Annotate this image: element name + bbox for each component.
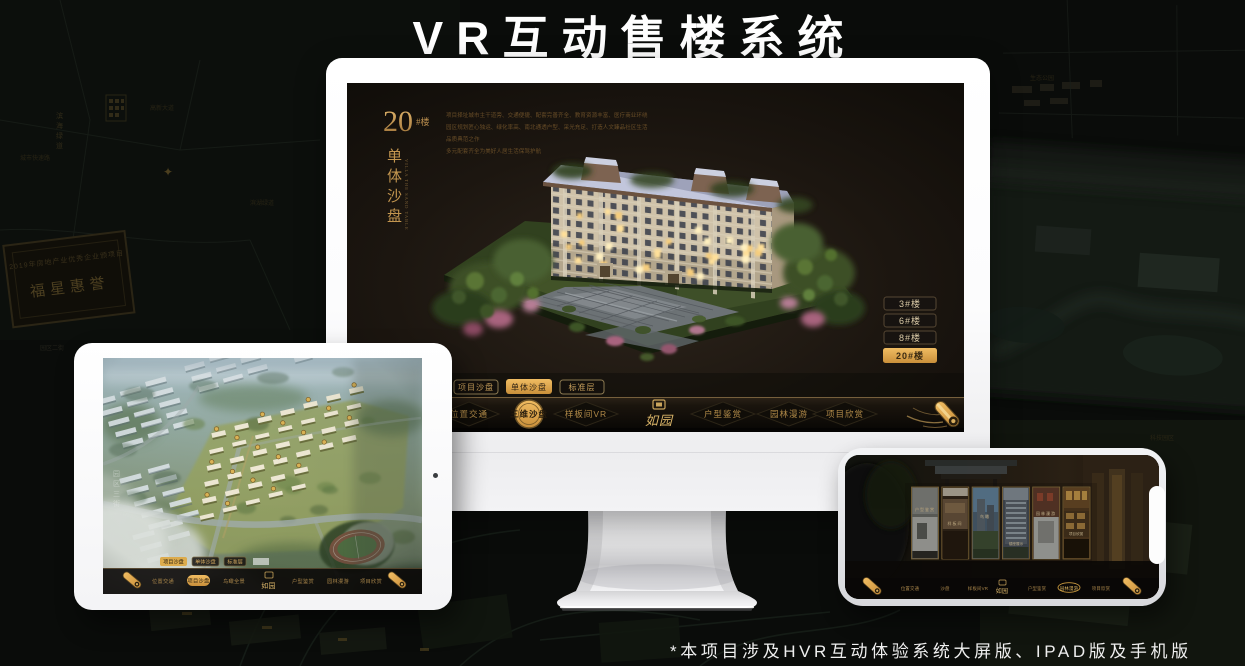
svg-text:单体沙盘: 单体沙盘 bbox=[195, 558, 216, 566]
svg-text:生态公园: 生态公园 bbox=[1030, 74, 1054, 82]
svg-text:海: 海 bbox=[56, 121, 63, 130]
svg-text:三: 三 bbox=[113, 490, 120, 498]
svg-text:园林漫游: 园林漫游 bbox=[327, 577, 349, 585]
svg-text:鸟瞰全景: 鸟瞰全景 bbox=[223, 577, 245, 585]
svg-text:项目欣赏: 项目欣赏 bbox=[826, 409, 864, 419]
svg-text:盘: 盘 bbox=[387, 207, 402, 225]
svg-text:三维沙盘: 三维沙盘 bbox=[510, 409, 548, 419]
svg-text:城市快速路: 城市快速路 bbox=[20, 154, 50, 162]
svg-text:高新大道: 高新大道 bbox=[150, 104, 174, 112]
svg-text:8#楼: 8#楼 bbox=[899, 332, 921, 343]
svg-text:滨: 滨 bbox=[56, 111, 63, 120]
svg-text:沙: 沙 bbox=[387, 189, 402, 205]
svg-text:✦: ✦ bbox=[163, 165, 173, 179]
svg-text:街: 街 bbox=[113, 499, 120, 508]
svg-text:标准层: 标准层 bbox=[569, 382, 596, 392]
svg-text:#楼: #楼 bbox=[416, 116, 430, 127]
svg-text:位置交通: 位置交通 bbox=[152, 577, 174, 585]
svg-text:6#楼: 6#楼 bbox=[899, 315, 921, 326]
svg-text:样板间VR: 样板间VR bbox=[968, 585, 988, 592]
svg-text:样板间VR: 样板间VR bbox=[565, 409, 607, 419]
svg-text:如园: 如园 bbox=[645, 413, 674, 428]
svg-text:项目欣赏: 项目欣赏 bbox=[360, 577, 382, 585]
svg-text:户型鉴赏: 户型鉴赏 bbox=[292, 577, 314, 585]
svg-text:品质典范之作: 品质典范之作 bbox=[446, 135, 480, 143]
svg-text:绿: 绿 bbox=[56, 131, 63, 140]
svg-text:标准层: 标准层 bbox=[227, 558, 243, 566]
svg-text:项目沙盘: 项目沙盘 bbox=[458, 382, 494, 392]
svg-text:位置交通: 位置交通 bbox=[901, 585, 920, 592]
svg-text:体: 体 bbox=[387, 168, 402, 185]
svg-text:户型鉴赏: 户型鉴赏 bbox=[1028, 585, 1047, 592]
svg-text:园林漫游: 园林漫游 bbox=[770, 409, 808, 419]
svg-text:如园: 如园 bbox=[996, 587, 1008, 595]
svg-text:20: 20 bbox=[383, 105, 413, 138]
svg-text:如园: 如园 bbox=[261, 581, 276, 590]
svg-text:项目择址城市主干道旁、交通便捷、配套完善齐全、教育资源丰富、: 项目择址城市主干道旁、交通便捷、配套完善齐全、教育资源丰富、医疗商业环绕 bbox=[446, 111, 648, 119]
svg-text:园: 园 bbox=[113, 470, 120, 478]
svg-text:位置交通: 位置交通 bbox=[450, 409, 488, 419]
svg-text:20#楼: 20#楼 bbox=[896, 350, 924, 361]
svg-text:区: 区 bbox=[113, 480, 120, 488]
svg-text:项目沙盘: 项目沙盘 bbox=[188, 577, 210, 585]
svg-text:滨湖绿道: 滨湖绿道 bbox=[250, 199, 274, 207]
svg-text:道: 道 bbox=[56, 141, 63, 150]
svg-text:园区二街: 园区二街 bbox=[40, 344, 64, 352]
svg-text:园区规划匠心独运、绿化率高、南北通透户型、采光充足、打造人文: 园区规划匠心独运、绿化率高、南北通透户型、采光充足、打造人文臻品社区生活 bbox=[446, 123, 648, 131]
svg-text:项目沙盘: 项目沙盘 bbox=[163, 558, 184, 566]
svg-text:项目欣赏: 项目欣赏 bbox=[1092, 585, 1111, 592]
svg-text:园林漫游: 园林漫游 bbox=[1060, 585, 1079, 592]
svg-text:户型鉴赏: 户型鉴赏 bbox=[704, 409, 742, 419]
svg-text:单体沙盘: 单体沙盘 bbox=[511, 382, 547, 392]
svg-text:多元配套齐全为美好人居生活保驾护航: 多元配套齐全为美好人居生活保驾护航 bbox=[446, 147, 542, 155]
svg-text:3#楼: 3#楼 bbox=[899, 298, 921, 309]
svg-text:VILLA THE SAND TABLE: VILLA THE SAND TABLE bbox=[404, 159, 409, 231]
svg-text:单: 单 bbox=[387, 148, 402, 165]
svg-text:科技园区: 科技园区 bbox=[1150, 434, 1174, 442]
svg-text:沙盘: 沙盘 bbox=[940, 585, 950, 591]
